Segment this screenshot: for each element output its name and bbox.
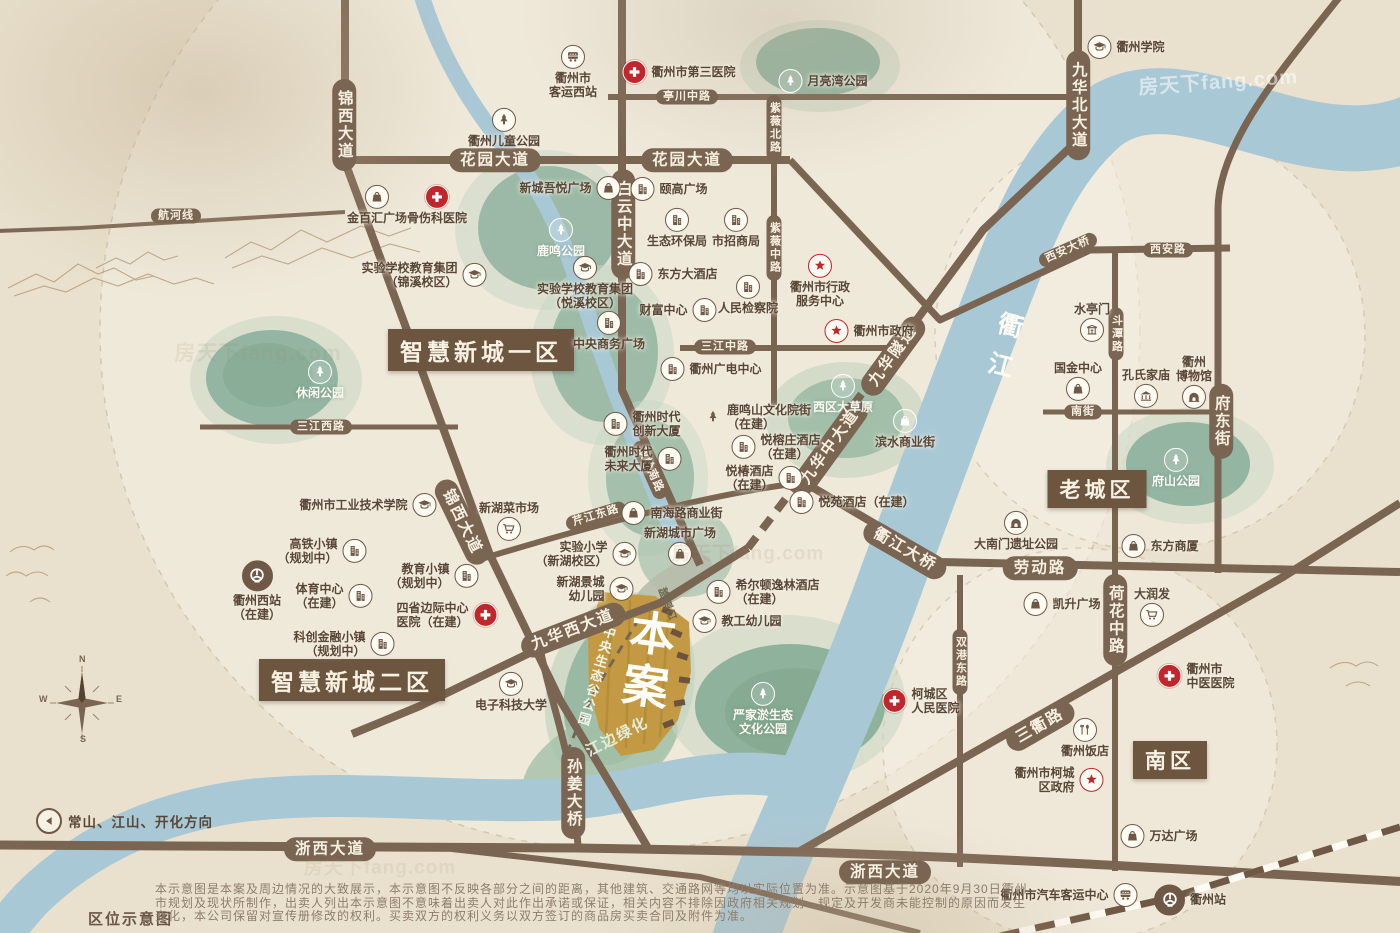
compass: N W E S xyxy=(40,658,124,746)
poi-hsr-town: 高铁小镇（规划中） xyxy=(277,537,366,565)
poi-nanhai-road-street: 南海路商业街 xyxy=(621,501,722,525)
poi-kongshi-temple: 孔氏家庙 xyxy=(1122,368,1170,408)
poi-jinbaihui-plaza: 金百汇广场 xyxy=(347,185,407,225)
poi-label: 高铁小镇（规划中） xyxy=(277,537,337,565)
compass-rose-icon xyxy=(40,658,124,746)
poi-dongfang-mall: 东方商厦 xyxy=(1121,534,1198,558)
poi-label: 衢州饭店 xyxy=(1061,744,1109,758)
poi-guojin-center: 国金中心 xyxy=(1054,361,1102,401)
rail-icon xyxy=(241,560,272,591)
poi-label: 实验学校教育集团（锦溪校区） xyxy=(361,261,457,289)
poi-label: 衢州时代未来大厦 xyxy=(604,445,652,473)
cross-icon xyxy=(474,603,498,627)
poi-exp-school-yuexi: 实验学校教育集团（悦溪校区） xyxy=(537,256,633,310)
poi-education-town: 教育小镇（规划中） xyxy=(389,562,478,590)
poi-label: 衢州市政府 xyxy=(853,324,913,338)
road-label: 劳动路 xyxy=(1003,556,1078,580)
cross-icon xyxy=(425,185,449,209)
building-icon xyxy=(630,177,654,201)
poi-west-coach-station: 衢州市客运西站 xyxy=(549,45,597,99)
arch-icon xyxy=(1004,511,1028,535)
building-icon xyxy=(371,632,395,656)
road-label: 三江西路 xyxy=(290,420,352,435)
road-label: 亭川中路 xyxy=(656,90,718,105)
poi-hilton-hotel: 希尔顿逸林酒店（在建） xyxy=(706,578,819,606)
road-label: 花园大道 xyxy=(449,148,541,172)
road-label: 锦西大道 xyxy=(332,79,356,171)
disclaimer-line: 本示意图是本案及周边情况的大致展示，本示意图不反映各部分之间的距离，其他建筑、交… xyxy=(155,883,1028,897)
poi-label: 悦榕庄酒店（在建） xyxy=(760,433,820,461)
bag-icon xyxy=(1121,534,1145,558)
poi-kecheng-district-government: 衢州市柯城区政府 xyxy=(1014,766,1103,794)
poi-label: 月亮湾公园 xyxy=(807,74,867,88)
poi-dongfang-hotel: 东方大酒店 xyxy=(628,262,717,286)
road-label: 紫薇北路 xyxy=(767,95,782,161)
road-label: 孙姜大桥 xyxy=(561,747,585,839)
poi-label: 体育中心（在建） xyxy=(295,582,343,610)
location-map: 锦西大道航河线花园大道花园大道亭川中路紫薇北路紫薇中路白云中大道九华北大道三江西… xyxy=(0,0,1400,933)
building-icon xyxy=(693,298,717,322)
poi-label: 滨水商业街 xyxy=(875,435,935,449)
cap-icon xyxy=(692,609,716,633)
road-label: 荷花中路 xyxy=(1103,574,1127,666)
poi-kecheng-peoples-hospital: 柯城区人民医院 xyxy=(882,687,959,715)
building-icon xyxy=(349,584,373,608)
poi-wanda-plaza: 万达广场 xyxy=(1120,824,1197,848)
poi-luming-park: 鹿鸣公园 xyxy=(537,218,585,258)
poi-yigao-plaza: 颐高广场 xyxy=(630,177,707,201)
tree-icon xyxy=(831,374,855,398)
poi-procuratorate: 人民检察院 xyxy=(718,275,778,315)
poi-label: 衢州学院 xyxy=(1116,40,1164,54)
watermark: 房天下fang.com xyxy=(174,337,341,367)
poi-times-future-tower: 衢州时代未来大厦 xyxy=(604,445,681,473)
poi-label: 悦苑酒店（在建） xyxy=(818,495,914,509)
star-icon xyxy=(1080,768,1104,792)
poi-label: 衢州市中医医院 xyxy=(1186,662,1234,690)
direction-note-label: 常山、江山、开化方向 xyxy=(68,811,213,831)
poi-label: 财富中心 xyxy=(639,303,687,317)
watermark: 房天下fang.com xyxy=(304,853,456,880)
building-icon xyxy=(731,435,755,459)
building-icon xyxy=(455,564,479,588)
poi-label: 休闲公园 xyxy=(296,386,344,400)
poi-label: 新湖景城幼儿园 xyxy=(556,575,604,603)
road-label: 浙西大道 xyxy=(839,860,931,884)
cap-icon xyxy=(499,672,523,696)
poi-label: 骨伤科医院 xyxy=(407,211,467,225)
road-label: 西安路 xyxy=(1143,243,1193,258)
watermark: 房天下fang.com xyxy=(1137,60,1299,100)
poi-label: 衢州市第三医院 xyxy=(651,65,735,79)
cap-icon xyxy=(613,542,637,566)
poi-times-innovation-tower: 衢州时代创新大厦 xyxy=(603,410,680,438)
poi-label: 教工幼儿园 xyxy=(721,614,781,628)
poi-west-grassland: 西区大草原 xyxy=(813,374,873,414)
road-label: 衢江大桥 xyxy=(859,517,950,583)
poi-label: 金百汇广场 xyxy=(347,211,407,225)
cart-icon xyxy=(497,517,521,541)
poi-kaisheng-plaza: 凯升广场 xyxy=(1023,592,1100,616)
poi-label: 衢州时代创新大厦 xyxy=(632,410,680,438)
area-label-smart-newtown-2: 智慧新城二区 xyxy=(259,659,445,701)
poi-orthopedic-hospital: 骨伤科医院 xyxy=(407,185,467,225)
bag-icon xyxy=(621,501,645,525)
poi-label: 衢州西站（在建） xyxy=(233,593,281,621)
poi-yanjiayu-park: 严家淤生态文化公园 xyxy=(733,682,793,736)
building-icon xyxy=(789,490,813,514)
temple-icon xyxy=(1134,384,1158,408)
poi-label: 科创金融小镇（规划中） xyxy=(293,630,365,658)
poi-label: 南海路商业街 xyxy=(650,506,722,520)
poi-label: 柯城区人民医院 xyxy=(911,687,959,715)
bag-icon xyxy=(1023,592,1047,616)
poi-label: 电子科技大学 xyxy=(475,698,547,712)
tree-icon xyxy=(778,69,802,93)
poi-label: 人民检察院 xyxy=(718,301,778,315)
cap-icon xyxy=(1087,35,1111,59)
poi-danan-gate-ruins-park: 大南门遗址公园 xyxy=(974,511,1058,551)
poi-label: 新城吾悦广场 xyxy=(519,181,591,195)
star-icon xyxy=(824,319,848,343)
cross-icon xyxy=(882,689,906,713)
poi-label: 衢州市客运西站 xyxy=(549,71,597,99)
poi-binshui-commercial-street: 滨水商业街 xyxy=(875,409,935,449)
poi-label: 教育小镇（规划中） xyxy=(389,562,449,590)
poi-quzhou-restaurant: 衢州饭店 xyxy=(1061,718,1109,758)
road-label: 芹江东路 xyxy=(564,500,628,532)
poi-banyan-hotel: 悦榕庄酒店（在建） xyxy=(731,433,820,461)
watermark: 房天下fang.com xyxy=(672,539,824,566)
poi-label: 颐高广场 xyxy=(659,182,707,196)
building-icon xyxy=(603,412,627,436)
building-icon xyxy=(343,539,367,563)
poi-lumingshan-culture-street: 鹿鸣山文化院街（在建） xyxy=(703,403,811,431)
bus-icon xyxy=(561,45,585,69)
tree-icon xyxy=(751,682,775,706)
poi-label: 国金中心 xyxy=(1054,361,1102,375)
poi-label: 东方大酒店 xyxy=(657,267,717,281)
poi-label: 悦椿酒店（在建） xyxy=(725,464,773,492)
building-icon xyxy=(658,447,682,471)
poi-industrial-tech-college: 衢州市工业技术学院 xyxy=(299,493,436,517)
building-icon xyxy=(779,466,803,490)
road-label: 府东街 xyxy=(1209,384,1233,459)
poi-yuechun-hotel: 悦椿酒店（在建） xyxy=(725,464,802,492)
poi-quzhou-museum: 衢州博物馆 xyxy=(1176,355,1212,409)
tree-icon xyxy=(549,218,573,242)
bus-icon xyxy=(1114,883,1138,907)
poi-fushan-park: 府山公园 xyxy=(1152,448,1200,488)
poi-shuitingmen: 水亭门 xyxy=(1074,302,1110,342)
building-icon xyxy=(706,580,730,604)
qujiang-river-label: 衢江 xyxy=(975,308,1030,396)
poi-label: 衢州博物馆 xyxy=(1176,355,1212,383)
bag-icon xyxy=(1120,824,1144,848)
disclaimer-line: 变化，本公司保留对宣传册修改的权利。买卖双方的权利义务以双方签订的商品房买卖合同… xyxy=(155,910,1028,924)
arrow-left-icon xyxy=(36,808,62,834)
compass-e: E xyxy=(116,694,122,704)
poi-xinhu-kindergarten: 新湖景城幼儿园 xyxy=(556,575,633,603)
poi-label: 孔氏家庙 xyxy=(1122,368,1170,382)
poi-label: 大南门遗址公园 xyxy=(974,537,1058,551)
poi-experimental-primary: 实验小学（新湖校区） xyxy=(535,540,636,568)
poi-third-hospital: 衢州市第三医院 xyxy=(622,60,735,84)
poi-label: 大润发 xyxy=(1134,587,1170,601)
bag-icon xyxy=(893,409,917,433)
poi-label: 中央商务广场 xyxy=(573,337,645,351)
road-label: 九华北大道 xyxy=(1066,50,1090,160)
road-label: 西安大桥 xyxy=(1037,231,1100,270)
poi-xinhu-market: 新湖菜市场 xyxy=(479,501,539,541)
cap-icon xyxy=(413,493,437,517)
road-label: 南街 xyxy=(1064,405,1102,420)
poi-radio-tv-center: 衢州广电中心 xyxy=(660,357,761,381)
museum-icon xyxy=(1182,385,1206,409)
poi-yueyuan-hotel: 悦苑酒店（在建） xyxy=(789,490,914,514)
poi-investment-bureau: 市招商局 xyxy=(712,208,760,248)
tree-icon xyxy=(1164,448,1188,472)
poi-quzhou-station: 衢州站 xyxy=(1154,885,1226,916)
poi-label: 新湖菜市场 xyxy=(479,501,539,515)
poi-fintech-town: 科创金融小镇（规划中） xyxy=(293,630,394,658)
poi-admin-service-center: 衢州市行政服务中心 xyxy=(790,254,850,308)
poi-label: 市招商局 xyxy=(712,234,760,248)
cap-icon xyxy=(610,577,634,601)
bag-icon xyxy=(597,176,621,200)
poi-label: 衢州站 xyxy=(1190,893,1226,907)
poi-sports-center: 体育中心（在建） xyxy=(295,582,372,610)
poi-label: 衢州市柯城区政府 xyxy=(1014,766,1074,794)
poi-label: 凯升广场 xyxy=(1052,597,1100,611)
map-labels-layer: 锦西大道航河线花园大道花园大道亭川中路紫薇北路紫薇中路白云中大道九华北大道三江西… xyxy=(0,0,1400,933)
poi-wuyue-plaza: 新城吾悦广场 xyxy=(519,176,620,200)
poi-label: 衢州儿童公园 xyxy=(468,134,540,148)
area-label-smart-newtown-1: 智慧新城一区 xyxy=(388,329,574,371)
poi-border-center-hospital: 四省边际中心医院（在建） xyxy=(396,601,497,629)
cross-icon xyxy=(1157,664,1181,688)
poi-jiaogong-kindergarten: 教工幼儿园 xyxy=(692,609,781,633)
poi-label: 衢州广电中心 xyxy=(689,362,761,376)
direction-note: 常山、江山、开化方向 xyxy=(36,808,213,834)
compass-s: S xyxy=(80,734,86,744)
road-label: 航河线 xyxy=(151,209,201,224)
poi-uestc: 电子科技大学 xyxy=(475,672,547,712)
fork-icon xyxy=(1073,718,1097,742)
tree-icon xyxy=(492,108,516,132)
building-icon xyxy=(597,311,621,335)
poi-exp-school-jinxi: 实验学校教育集团（锦溪校区） xyxy=(361,261,486,289)
poi-moon-bay-park: 月亮湾公园 xyxy=(778,69,867,93)
poi-quzhou-college: 衢州学院 xyxy=(1087,35,1164,59)
poi-city-government: 衢州市政府 xyxy=(824,319,913,343)
poi-label: 生态环保局 xyxy=(647,234,707,248)
cart-icon xyxy=(1140,603,1164,627)
poi-label: 实验学校教育集团（悦溪校区） xyxy=(537,282,633,310)
road-label: 斗潭路 xyxy=(1109,308,1124,361)
poi-label: 万达广场 xyxy=(1149,829,1197,843)
compass-n: N xyxy=(79,654,86,664)
poi-tcm-hospital: 衢州市中医医院 xyxy=(1157,662,1234,690)
building-icon xyxy=(724,208,748,232)
poi-central-business-plaza: 中央商务广场 xyxy=(573,311,645,351)
cross-icon xyxy=(622,60,646,84)
area-label-south-district: 南区 xyxy=(1133,741,1207,779)
poi-eco-environment-bureau: 生态环保局 xyxy=(647,208,707,248)
area-label-old-town: 老城区 xyxy=(1048,470,1147,508)
road-label: 三江中路 xyxy=(694,340,756,355)
gate-icon xyxy=(1080,318,1104,342)
cap-icon xyxy=(463,263,487,287)
building-icon xyxy=(660,357,684,381)
poi-label: 府山公园 xyxy=(1152,474,1200,488)
cap-icon xyxy=(573,256,597,280)
poi-label: 西区大草原 xyxy=(813,400,873,414)
poi-label: 严家淤生态文化公园 xyxy=(733,708,793,736)
building-icon xyxy=(665,208,689,232)
building-icon xyxy=(736,275,760,299)
poi-children-park: 衢州儿童公园 xyxy=(468,108,540,148)
poi-label: 四省边际中心医院（在建） xyxy=(396,601,468,629)
road-label: 花园大道 xyxy=(641,148,733,172)
poi-label: 衢州市行政服务中心 xyxy=(790,280,850,308)
poi-caifu-center: 财富中心 xyxy=(639,298,716,322)
poi-label: 鹿鸣山文化院街（在建） xyxy=(727,403,811,431)
bag-icon xyxy=(1066,377,1090,401)
poi-label: 水亭门 xyxy=(1074,302,1110,316)
poi-quzhou-west-station: 衢州西站（在建） xyxy=(233,560,281,621)
poi-label: 实验小学（新湖校区） xyxy=(535,540,607,568)
compass-w: W xyxy=(39,694,48,704)
bag-icon xyxy=(365,185,389,209)
poi-rt-mart: 大润发 xyxy=(1134,587,1170,627)
tree2-icon xyxy=(703,408,722,427)
rail-icon xyxy=(1154,885,1185,916)
poi-label: 衢州市工业技术学院 xyxy=(299,498,407,512)
road-label: 双港东路 xyxy=(953,629,968,695)
road-label: 紫薇中路 xyxy=(767,215,782,281)
poi-label: 希尔顿逸林酒店（在建） xyxy=(735,578,819,606)
star-icon xyxy=(808,254,832,278)
disclaimer: 本示意图是本案及周边情况的大致展示，本示意图不反映各部分之间的距离，其他建筑、交… xyxy=(155,883,1028,924)
poi-label: 东方商厦 xyxy=(1150,539,1198,553)
